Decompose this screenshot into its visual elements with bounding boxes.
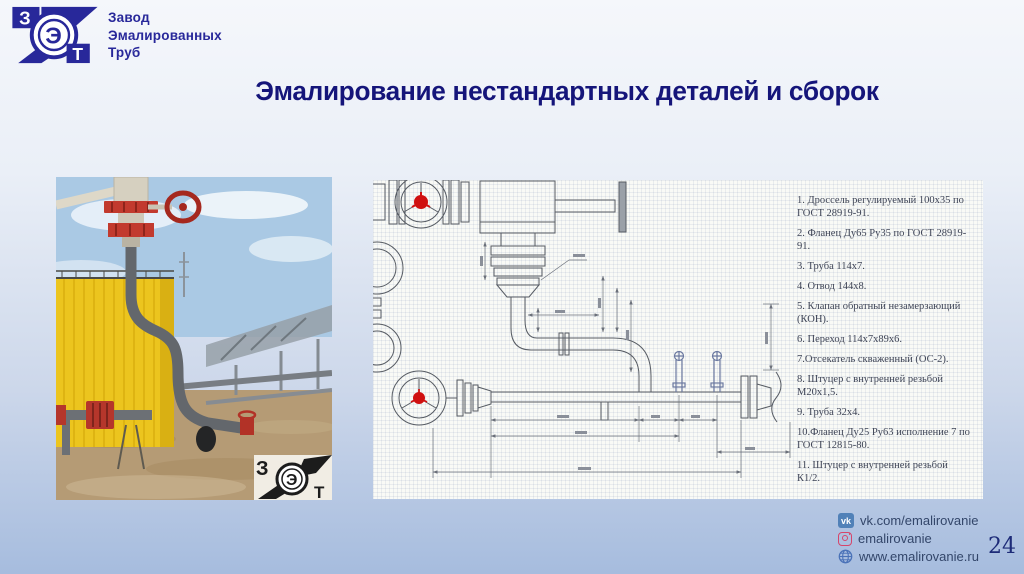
- parts-list-item: 10.Фланец Ду25 Ру63 исполнение 7 по ГОСТ…: [797, 426, 973, 452]
- parts-list-item: 9. Труба 32х4.: [797, 406, 973, 419]
- header-logo: З Э Т Завод Эмалированных Труб: [8, 5, 222, 65]
- logo-letter-t: Т: [72, 44, 83, 64]
- company-name: Завод Эмалированных Труб: [108, 5, 222, 62]
- photo-yellow-tank: [56, 271, 174, 447]
- page-title: Эмалирование нестандартных деталей и сбо…: [133, 76, 1000, 107]
- parts-list-item: 5. Клапан обратный незамерзающий (КОН).: [797, 300, 973, 326]
- drawing-dimension-lines: [433, 242, 790, 478]
- watermark-letter-z: З: [256, 458, 269, 480]
- parts-list-item: 2. Фланец Ду65 Ру35 по ГОСТ 28919-91.: [797, 227, 973, 253]
- parts-list-item: 4. Отвод 144х8.: [797, 280, 973, 293]
- website-link[interactable]: www.emalirovanie.ru: [838, 548, 1008, 565]
- logo-letter-z: З: [19, 7, 31, 28]
- company-name-line: Труб: [108, 44, 222, 62]
- photo-pipe-cap: [196, 426, 216, 452]
- watermark-letter-t: Т: [314, 483, 325, 500]
- technical-drawing-panel: 1. Дроссель регулируемый 100х35 по ГОСТ …: [373, 180, 983, 499]
- photo-watermark-logo: З Э Т: [254, 455, 332, 500]
- logo-letter-e: Э: [45, 23, 62, 49]
- wellhead-photo: З Э Т: [56, 177, 332, 500]
- social-links: vk vk.com/emalirovanie emalirovanie www.…: [838, 512, 1008, 566]
- company-name-line: Завод: [108, 9, 222, 27]
- instagram-link[interactable]: emalirovanie: [838, 530, 1008, 547]
- parts-list-item: 7.Отсекатель скваженный (ОС-2).: [797, 353, 973, 366]
- globe-icon: [838, 549, 853, 564]
- parts-list-item: 3. Труба 114х7.: [797, 260, 973, 273]
- watermark-letter-e: Э: [286, 472, 297, 489]
- vk-icon: vk: [838, 513, 854, 528]
- zet-logo-emblem: З Э Т: [8, 5, 100, 65]
- vk-link-label: vk.com/emalirovanie: [860, 513, 979, 528]
- technical-drawing: [373, 180, 793, 499]
- drawing-dimension-labels: [480, 254, 768, 470]
- parts-list: 1. Дроссель регулируемый 100х35 по ГОСТ …: [797, 194, 973, 492]
- drawing-main-pipeline: [491, 372, 781, 422]
- instagram-icon: [838, 532, 852, 546]
- page-number: 24: [988, 534, 1016, 559]
- company-name-line: Эмалированных: [108, 27, 222, 45]
- wellhead-photo-image: З Э Т: [56, 177, 332, 500]
- drawing-choke-assembly: [480, 181, 651, 392]
- drawing-wellhead-valves: [373, 180, 491, 425]
- instagram-link-label: emalirovanie: [858, 531, 932, 546]
- website-link-label: www.emalirovanie.ru: [859, 549, 979, 564]
- parts-list-item: 8. Штуцер с внутренней резьбой М20х1,5.: [797, 373, 973, 399]
- drawing-needle-valves: [673, 352, 723, 393]
- vk-link[interactable]: vk vk.com/emalirovanie: [838, 512, 1008, 529]
- parts-list-item: 1. Дроссель регулируемый 100х35 по ГОСТ …: [797, 194, 973, 220]
- parts-list-item: 11. Штуцер с внутренней резьбой К1/2.: [797, 459, 973, 485]
- parts-list-item: 6. Переход 114х7х89х6.: [797, 333, 973, 346]
